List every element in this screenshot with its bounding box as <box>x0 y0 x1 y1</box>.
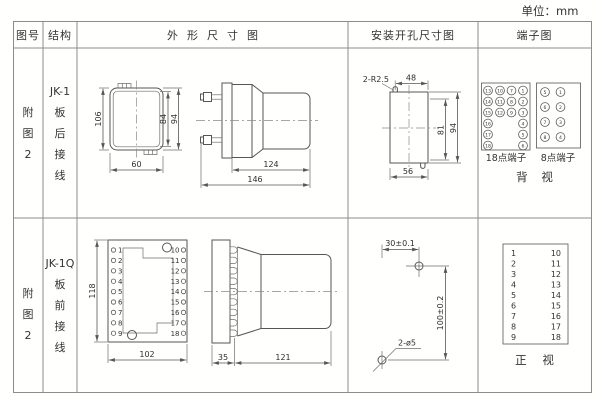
row2-structure: JK-1Q 板 前 接 线 <box>43 218 77 392</box>
jk1q-outline-side-view: 35 121 <box>204 240 338 366</box>
terminal-number: 3 <box>522 110 525 116</box>
back-view-label: 背 视 <box>478 170 591 184</box>
terminal-number: 8 <box>510 99 513 105</box>
row2-figure-no: 附 图 2 <box>13 218 43 392</box>
terminal-number: 9 <box>118 330 122 338</box>
dim-106: 106 <box>94 111 103 126</box>
terminal-pin <box>181 310 185 314</box>
terminal-number: 16 <box>171 309 180 317</box>
terminal-number: 1 <box>511 249 516 258</box>
terminal-number: 1 <box>118 247 122 255</box>
terminal-screw <box>230 299 237 305</box>
terminal-screw <box>230 247 237 253</box>
slot-note: 2-R2.5 <box>363 75 389 84</box>
terminal-number: 16 <box>551 312 561 321</box>
column-header-structure: 结构 <box>43 22 77 48</box>
terminal-number: 3 <box>511 270 516 279</box>
terminal-number: 1 <box>559 90 562 96</box>
row1-structure: JK-1 板 后 接 线 <box>43 48 77 218</box>
terminal-number: 6 <box>511 302 516 311</box>
terminal-screw <box>230 268 237 274</box>
dim-30: 30±0.1 <box>385 239 415 248</box>
terminal-number: 15 <box>485 110 491 116</box>
terminal-pin <box>111 289 115 293</box>
dim-100: 100±0.2 <box>436 296 445 331</box>
terminal-number: 8 <box>511 323 516 332</box>
terminal-pin <box>181 269 185 273</box>
terminal-number: 11 <box>171 257 180 265</box>
terminal-number: 8 <box>118 319 122 327</box>
terminal-pin <box>181 289 185 293</box>
terminal-number: 17 <box>551 323 561 332</box>
terminal-number: 10 <box>551 249 561 258</box>
terminal-number: 2 <box>522 99 525 105</box>
terminal-pin <box>111 310 115 314</box>
terminal-pin <box>111 331 115 335</box>
terminal-screw <box>230 320 237 326</box>
mounting-hole <box>128 331 137 340</box>
dim-124: 124 <box>263 160 278 169</box>
jk1-panel-cutout: 48 2-R2.5 81 94 56 <box>363 74 461 181</box>
terminal-number: 9 <box>511 333 516 342</box>
terminal-number: 15 <box>171 299 180 307</box>
dim-102: 102 <box>139 350 154 359</box>
terminal-pin <box>181 321 185 325</box>
terminal-18-label: 18点端子 <box>476 151 536 163</box>
column-header-outline: 外形尺寸图 <box>77 22 348 48</box>
terminal-pin <box>111 300 115 304</box>
table-grid <box>13 22 592 393</box>
terminal-number: 4 <box>522 121 525 127</box>
terminal-number: 2 <box>559 105 562 111</box>
terminal-number: 8 <box>544 135 547 141</box>
terminal-number: 13 <box>551 281 561 290</box>
dim-60: 60 <box>131 160 141 169</box>
terminal-number: 17 <box>485 132 491 138</box>
column-header-figure-no: 图号 <box>13 22 43 48</box>
dim-94: 94 <box>170 114 179 124</box>
terminal-pin <box>181 300 185 304</box>
terminal-number: 6 <box>118 299 123 307</box>
terminal-number: 7 <box>118 309 122 317</box>
terminal-screw <box>230 278 237 284</box>
terminal-number: 13 <box>171 278 180 286</box>
terminal-8-label: 8点端子 <box>532 151 584 163</box>
dim-118: 118 <box>88 283 97 298</box>
terminal-number: 5 <box>544 90 547 96</box>
terminal-diagram-front-view: 110211312413514615716817918 <box>503 244 568 344</box>
terminal-number: 15 <box>551 302 561 311</box>
terminal-number: 6 <box>544 105 547 111</box>
terminal-number: 12 <box>171 267 180 275</box>
terminal-block-8point: 56781234 <box>541 88 565 142</box>
terminal-number: 9 <box>510 110 513 116</box>
jk1q-outline-front-view: 110211312413514615716817918 118 102 <box>88 240 187 363</box>
relay-dimension-sheet: 单位：mm <box>0 0 600 400</box>
terminal-number: 11 <box>551 260 561 269</box>
terminal-number: 6 <box>522 143 525 149</box>
terminal-number: 7 <box>510 88 513 94</box>
terminal-number: 18 <box>171 330 180 338</box>
terminal-number: 5 <box>522 132 525 138</box>
terminal-number: 14 <box>171 288 180 296</box>
column-header-mounting: 安装开孔尺寸图 <box>348 22 478 48</box>
terminal-screw <box>230 257 237 263</box>
terminal-number: 4 <box>559 135 562 141</box>
terminal-pin <box>111 279 115 283</box>
terminal-number: 2 <box>511 260 516 269</box>
terminal-pin <box>181 258 185 262</box>
hole-note: 2-ø5 <box>398 339 416 348</box>
terminal-number: 12 <box>551 270 561 279</box>
terminal-diagram-back-view: 131415161718101112789123456 56781234 <box>482 83 581 150</box>
terminal-number: 3 <box>118 267 122 275</box>
terminal-number: 13 <box>485 88 491 94</box>
terminal-number: 2 <box>118 257 122 265</box>
terminal-number: 7 <box>544 120 547 126</box>
terminal-number: 4 <box>118 278 123 286</box>
dim-48: 48 <box>406 74 416 83</box>
dim-94-cutout: 94 <box>449 123 458 133</box>
terminal-pin <box>181 279 185 283</box>
jk1-outline-side-view: 124 146 <box>196 83 318 188</box>
terminal-number: 7 <box>511 312 516 321</box>
terminal-screw <box>230 330 237 336</box>
dim-146: 146 <box>247 175 262 184</box>
mounting-stud <box>201 93 223 102</box>
terminal-number: 5 <box>511 291 516 300</box>
terminal-number: 10 <box>497 88 503 94</box>
terminal-number: 10 <box>171 247 180 255</box>
dim-84: 84 <box>159 114 168 124</box>
column-header-terminal: 端子图 <box>478 22 591 48</box>
jk1q-drill-plan: 30±0.1 100±0.2 2-ø5 <box>373 239 449 372</box>
terminal-number: 3 <box>559 120 562 126</box>
terminal-pin <box>111 248 115 252</box>
jk1q-terminal-list: 110211312413514615716817918 <box>511 249 561 342</box>
terminal-screw <box>230 309 237 315</box>
front-view-label: 正 视 <box>478 353 591 367</box>
terminal-number: 12 <box>497 110 503 116</box>
terminal-number: 5 <box>118 288 122 296</box>
terminal-number: 18 <box>551 333 561 342</box>
terminal-pin <box>111 258 115 262</box>
terminal-block-18point: 131415161718101112789123456 <box>484 86 528 150</box>
drawing-canvas: 106 84 94 60 <box>0 0 600 400</box>
terminal-number: 1 <box>522 88 525 94</box>
terminal-number: 11 <box>497 99 503 105</box>
terminal-pin <box>111 269 115 273</box>
dim-81: 81 <box>437 125 446 135</box>
terminal-number: 17 <box>171 319 180 327</box>
terminal-number: 14 <box>551 291 561 300</box>
dim-121: 121 <box>275 353 290 362</box>
terminal-pin <box>181 248 185 252</box>
terminal-number: 14 <box>485 99 491 105</box>
terminal-number: 18 <box>485 143 491 149</box>
dim-56: 56 <box>403 167 413 176</box>
terminal-pin <box>181 331 185 335</box>
jk1-outline-front-view: 106 84 94 60 <box>94 81 182 174</box>
dim-35: 35 <box>218 353 228 362</box>
row1-figure-no: 附 图 2 <box>13 48 43 218</box>
terminal-pin <box>111 321 115 325</box>
terminal-number: 4 <box>511 281 516 290</box>
terminal-number: 16 <box>485 121 491 127</box>
jk1q-front-pins: 110211312413514615716817918 <box>111 247 185 338</box>
mounting-stud <box>201 136 223 145</box>
